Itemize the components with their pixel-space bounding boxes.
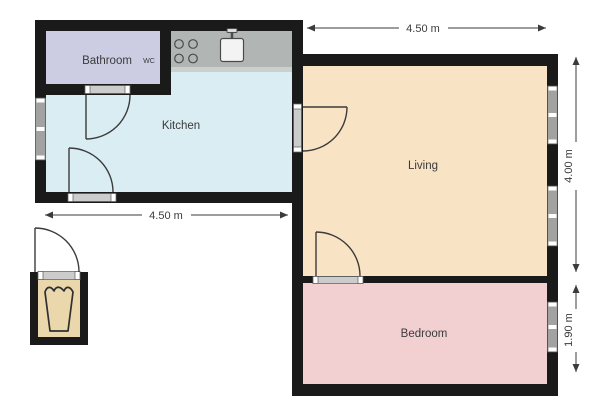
living-label: Living — [408, 160, 438, 172]
bathroom-label: Bathroom — [82, 55, 132, 67]
floor-plan: Bathroom WC Kitchen Living Bedroom 4.50 … — [0, 0, 600, 400]
storage-right-wall — [80, 272, 88, 345]
living-height-label: 4.00 m — [563, 149, 575, 183]
storage-door — [35, 228, 79, 272]
living-width-label: 4.50 m — [406, 23, 440, 35]
bedroom-window — [548, 302, 558, 352]
kitchen-door-threshold — [68, 194, 116, 202]
bedroom-label: Bedroom — [401, 328, 448, 340]
bathroom-door-threshold — [85, 86, 130, 94]
living-top-wall — [292, 54, 558, 66]
bedroom-height-dimension: 1.90 m — [563, 285, 580, 372]
bottom-exterior-wall — [292, 384, 558, 396]
kitchen-width-label: 4.50 m — [149, 210, 183, 222]
bathroom-right-wall — [160, 20, 171, 95]
living-entry-threshold — [294, 104, 302, 152]
living-width-dimension: 4.50 m — [307, 23, 546, 35]
kitchen-window — [36, 98, 46, 160]
kitchen-label: Kitchen — [162, 120, 200, 132]
storage-left-wall — [30, 272, 38, 345]
bedroom-height-label: 1.90 m — [563, 313, 575, 347]
bedroom-door-threshold — [313, 277, 363, 284]
living-height-dimension: 4.00 m — [563, 57, 580, 272]
living-window-lower — [548, 186, 558, 246]
kitchen-counter-edge — [171, 67, 292, 72]
storage-door-swing-arc — [35, 228, 79, 272]
kitchen-width-dimension: 4.50 m — [45, 210, 288, 222]
wc-label: WC — [143, 58, 155, 65]
living-left-wall — [292, 20, 303, 396]
storage-door-threshold — [38, 272, 80, 280]
storage-bottom-wall — [30, 337, 88, 345]
living-window-upper — [548, 86, 558, 144]
floor-plan-page: Bathroom WC Kitchen Living Bedroom 4.50 … — [0, 0, 600, 400]
